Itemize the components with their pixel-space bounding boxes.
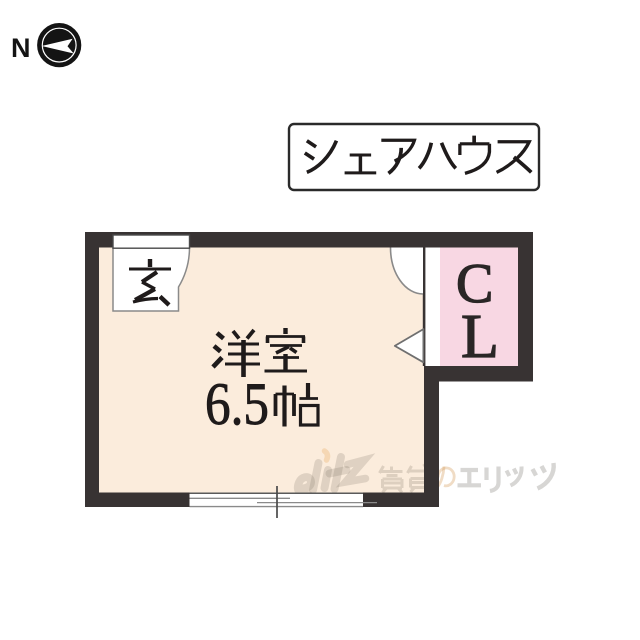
- svg-text:L: L: [461, 303, 499, 371]
- svg-text:6.5: 6.5: [205, 371, 269, 437]
- svg-text:N: N: [11, 33, 31, 63]
